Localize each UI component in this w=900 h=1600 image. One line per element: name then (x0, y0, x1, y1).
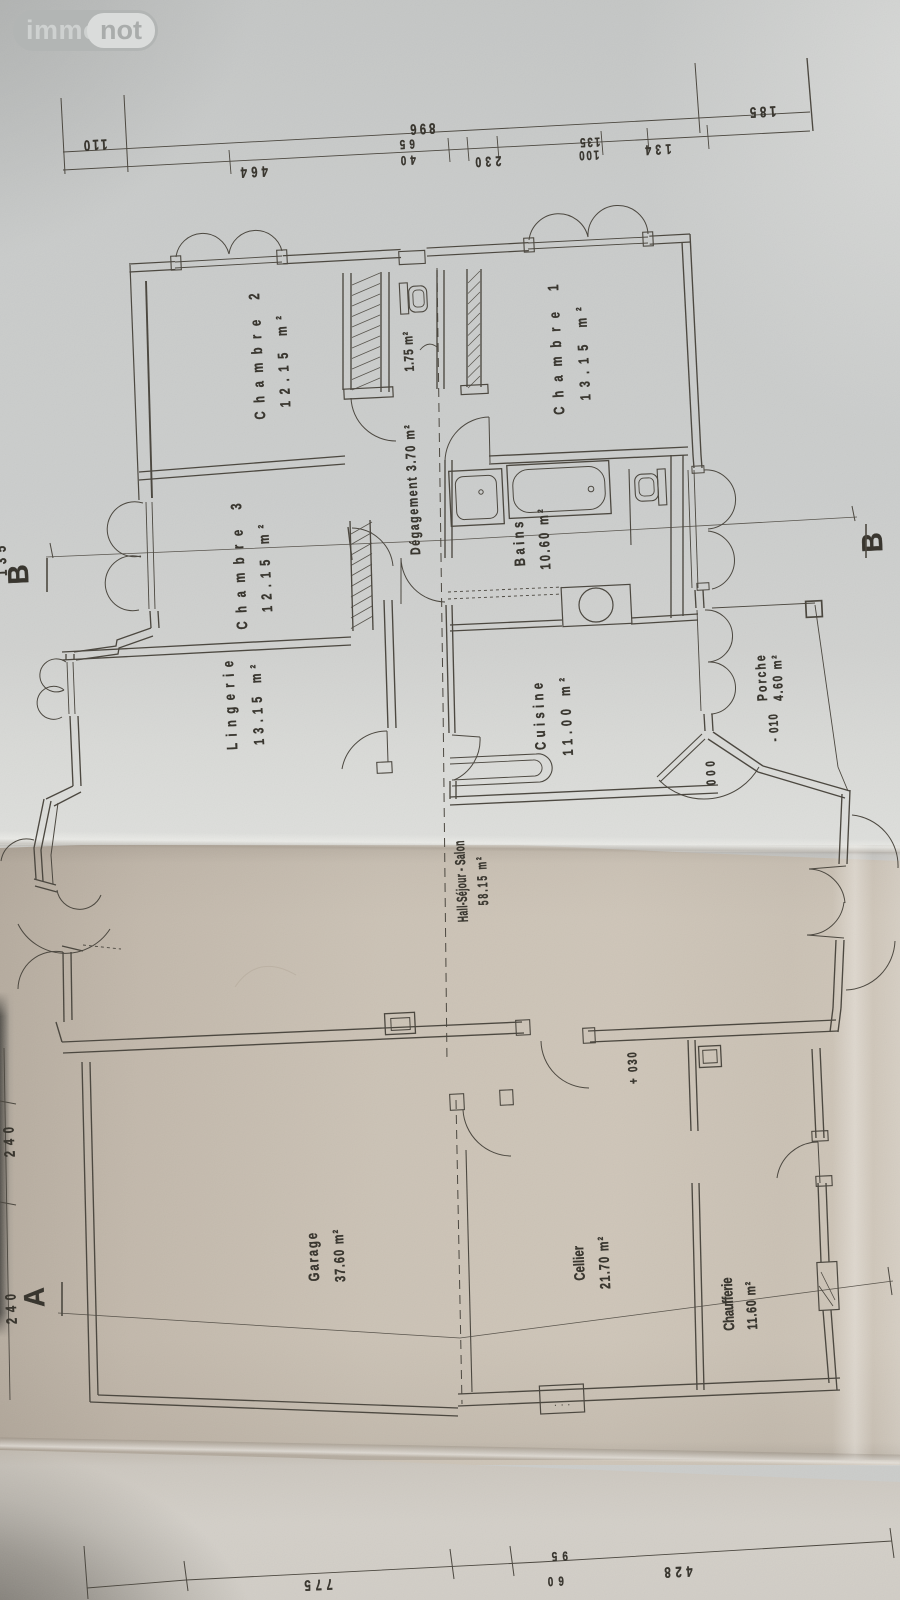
svg-text:B: B (1, 564, 35, 585)
svg-text:Chambre 1: Chambre 1 (544, 275, 568, 415)
svg-text:135: 135 (578, 134, 601, 149)
svg-text:B: B (855, 532, 889, 553)
svg-text:Bains: Bains (509, 518, 528, 567)
svg-text:Cuisine: Cuisine (529, 678, 549, 750)
svg-text:10.60 m²: 10.60 m² (534, 506, 554, 570)
svg-text:95: 95 (546, 1548, 568, 1563)
svg-text:428: 428 (659, 1563, 693, 1582)
svg-text:230: 230 (471, 153, 502, 170)
svg-text:13.15 m²: 13.15 m² (572, 300, 594, 401)
svg-text:134: 134 (641, 141, 672, 158)
svg-text:12.15 m²: 12.15 m² (254, 518, 276, 612)
svg-text:775: 775 (299, 1576, 333, 1595)
svg-text:11.60 m²: 11.60 m² (742, 1280, 760, 1330)
svg-text:4.60 m²: 4.60 m² (768, 653, 786, 701)
svg-text:Garage: Garage (303, 1231, 322, 1282)
svg-text:110: 110 (81, 136, 108, 154)
svg-text:65: 65 (395, 136, 415, 151)
svg-text:1.75 m²: 1.75 m² (400, 331, 418, 372)
svg-text:58.15 m²: 58.15 m² (474, 855, 492, 906)
svg-text:- 010: - 010 (767, 713, 782, 742)
svg-text:+ 030: + 030 (626, 1050, 641, 1084)
svg-text:100: 100 (577, 147, 600, 162)
svg-text:A: A (17, 1287, 51, 1308)
svg-text:896: 896 (407, 120, 436, 138)
svg-text:Dégagement 3.70 m²: Dégagement 3.70 m² (401, 423, 423, 555)
svg-text:464: 464 (236, 163, 268, 181)
svg-text:185: 185 (746, 103, 777, 121)
svg-text:Chambre 2: Chambre 2 (245, 285, 269, 420)
svg-text:240: 240 (0, 1121, 18, 1158)
svg-text:60: 60 (542, 1573, 564, 1588)
svg-text:0: 0 (0, 354, 3, 360)
svg-text:000: 000 (704, 757, 719, 786)
svg-text:Hall-Séjour - Salon: Hall-Séjour - Salon (451, 840, 472, 923)
svg-text:Cellier: Cellier (570, 1245, 589, 1281)
svg-text:37.60 m²: 37.60 m² (329, 1228, 349, 1282)
svg-text:13.15 m²: 13.15 m² (246, 659, 267, 745)
svg-text:11.00 m²: 11.00 m² (555, 672, 576, 756)
svg-text:40: 40 (396, 152, 416, 167)
svg-text:12.15 m²: 12.15 m² (272, 309, 294, 408)
svg-text:Chambre 3: Chambre 3 (227, 495, 251, 630)
svg-text:Chaufferie: Chaufferie (718, 1277, 738, 1331)
svg-text:· · ·: · · · (553, 1399, 571, 1412)
svg-text:21.70 m²: 21.70 m² (594, 1235, 614, 1289)
svg-text:0: 0 (0, 371, 3, 377)
svg-text:Lingerie: Lingerie (219, 654, 241, 750)
